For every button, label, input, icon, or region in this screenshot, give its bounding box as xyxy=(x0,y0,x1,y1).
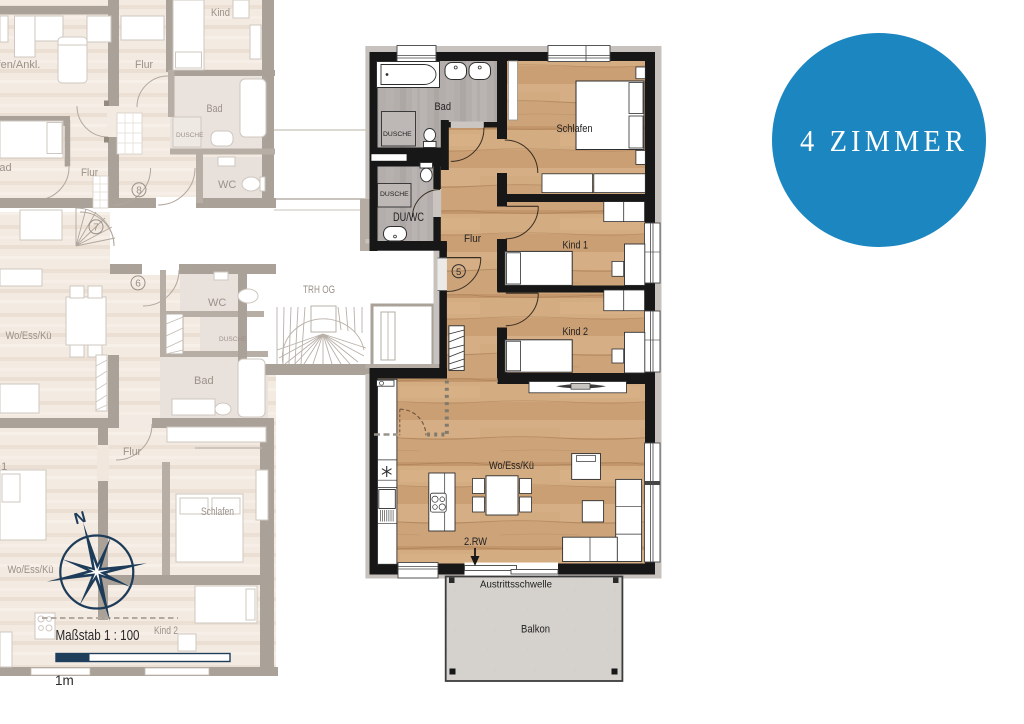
svg-text:DUSCHE: DUSCHE xyxy=(176,132,204,139)
svg-text:DU/WC: DU/WC xyxy=(393,212,424,224)
svg-text:1m: 1m xyxy=(55,673,74,688)
svg-text:Bad: Bad xyxy=(194,375,214,387)
svg-text:7: 7 xyxy=(93,223,99,234)
svg-text:DUSCHE: DUSCHE xyxy=(219,336,247,343)
svg-text:Kind 1: Kind 1 xyxy=(563,240,589,252)
svg-text:WC: WC xyxy=(218,179,236,191)
svg-text:Bad: Bad xyxy=(435,101,452,113)
svg-text:Wo/Ess/Kü: Wo/Ess/Kü xyxy=(6,330,52,342)
svg-text:2.RW: 2.RW xyxy=(464,536,488,548)
svg-text:Wo/Ess/Kü: Wo/Ess/Kü xyxy=(489,460,534,472)
svg-text:Wo/Ess/Kü: Wo/Ess/Kü xyxy=(8,564,54,576)
svg-text:Schlafen: Schlafen xyxy=(557,123,593,135)
svg-text:8: 8 xyxy=(136,186,142,197)
svg-text:Kind 2: Kind 2 xyxy=(154,625,178,637)
svg-text:Maßstab 1 : 100: Maßstab 1 : 100 xyxy=(56,628,140,644)
svg-text:Flur: Flur xyxy=(123,446,141,458)
svg-text:Balkon: Balkon xyxy=(521,624,550,636)
svg-text:Kind 1: Kind 1 xyxy=(0,461,7,473)
svg-text:Bad: Bad xyxy=(207,103,223,115)
svg-text:Schlafen/Ankl.: Schlafen/Ankl. xyxy=(0,59,40,71)
svg-text:Flur: Flur xyxy=(464,233,481,245)
svg-text:5: 5 xyxy=(456,267,461,278)
svg-text:Flur: Flur xyxy=(135,59,153,71)
svg-text:Flur: Flur xyxy=(81,167,98,179)
svg-text:Kind: Kind xyxy=(211,7,230,19)
svg-text:Kind 2: Kind 2 xyxy=(563,326,589,338)
svg-text:DUSCHE: DUSCHE xyxy=(383,131,412,138)
svg-text:Austrittsschwelle: Austrittsschwelle xyxy=(480,579,552,591)
svg-text:TRH OG: TRH OG xyxy=(303,284,335,296)
svg-text:4 ZIMMER: 4 ZIMMER xyxy=(800,123,968,158)
svg-text:Schlafen: Schlafen xyxy=(201,506,234,518)
svg-text:WC: WC xyxy=(208,297,226,309)
svg-text:DUSCHE: DUSCHE xyxy=(380,191,409,198)
svg-text:6: 6 xyxy=(135,279,141,290)
svg-text:Bad: Bad xyxy=(0,162,12,174)
